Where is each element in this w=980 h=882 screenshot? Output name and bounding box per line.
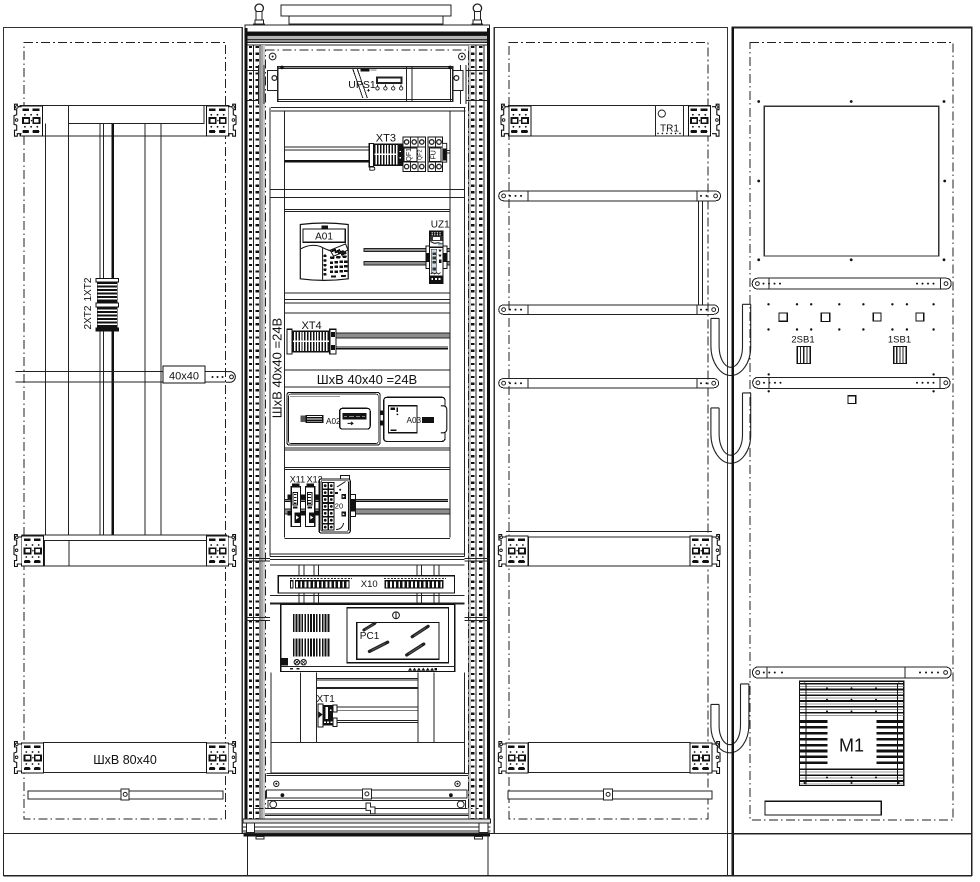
svg-text:XT3: XT3 [376, 133, 396, 145]
svg-text:XT4: XT4 [302, 320, 322, 332]
svg-text:2XT2: 2XT2 [83, 305, 94, 329]
svg-text:X10: X10 [361, 579, 378, 590]
svg-text:40x40: 40x40 [169, 371, 199, 383]
svg-text:1XT2: 1XT2 [83, 277, 94, 301]
svg-text:A01: A01 [315, 232, 333, 243]
svg-text:X11: X11 [290, 474, 305, 484]
svg-text:UZ1: UZ1 [431, 220, 450, 231]
svg-text:1SB1: 1SB1 [888, 334, 911, 345]
svg-text:QF2: QF2 [417, 149, 423, 160]
svg-text:ШхВ 40x40 =24В: ШхВ 40x40 =24В [317, 372, 417, 387]
svg-text:QF1: QF1 [406, 148, 413, 162]
svg-text:M1: M1 [839, 736, 864, 756]
svg-text:XT1: XT1 [317, 694, 336, 705]
svg-text:UPS1: UPS1 [348, 79, 376, 91]
svg-text:ШхВ 80x40: ШхВ 80x40 [93, 753, 157, 767]
svg-text:TR1: TR1 [660, 123, 679, 134]
svg-text:A03: A03 [407, 416, 422, 425]
svg-text:A02: A02 [326, 417, 341, 426]
svg-text:2SB1: 2SB1 [791, 334, 814, 345]
svg-text:FU: FU [430, 150, 437, 159]
svg-text:20: 20 [335, 502, 343, 511]
svg-text:PC1: PC1 [360, 631, 380, 642]
svg-text:ШхВ 40x40 =24В: ШхВ 40x40 =24В [270, 318, 285, 418]
